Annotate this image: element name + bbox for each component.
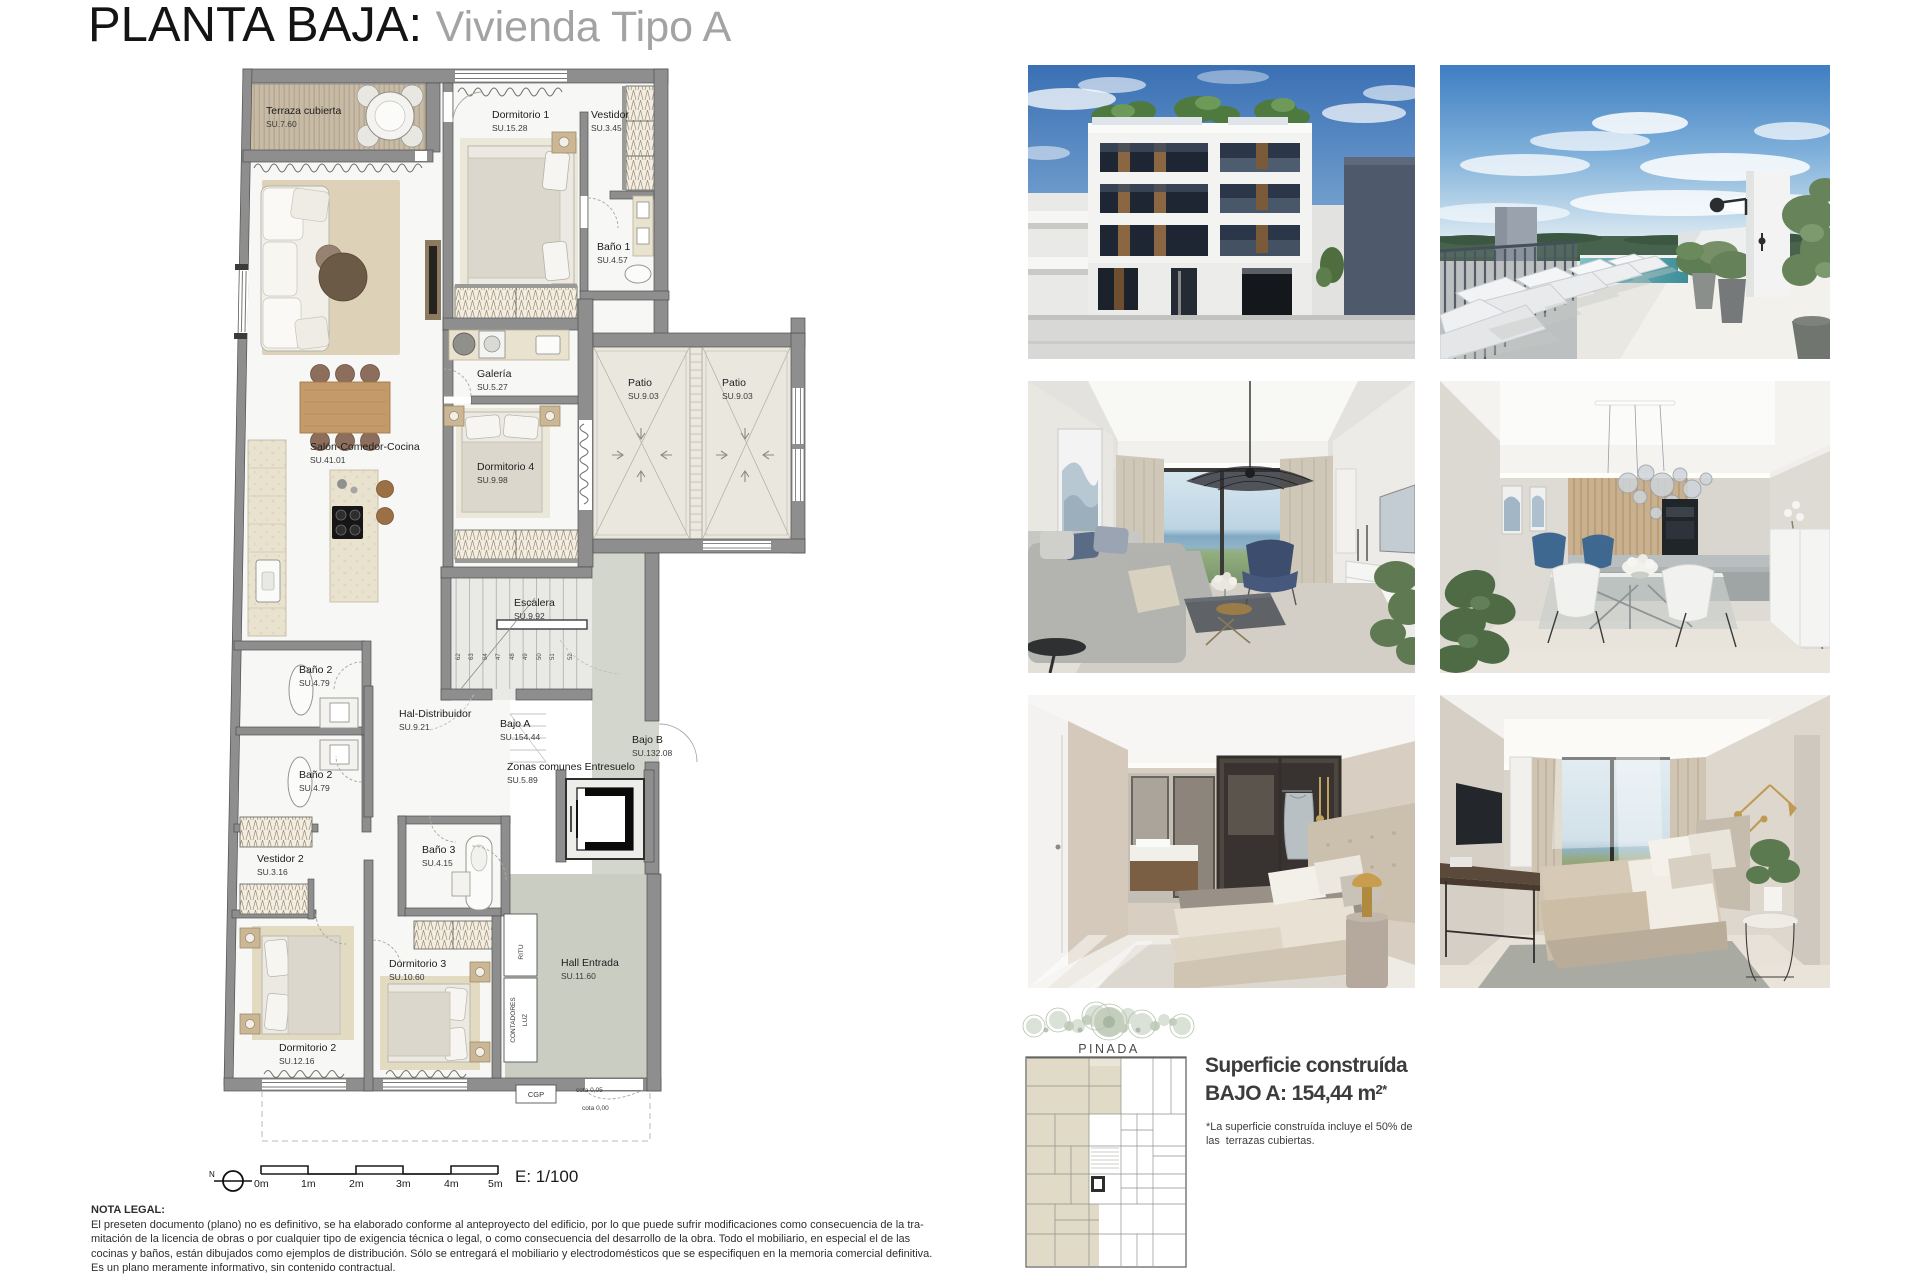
svg-text:CONTADORES: CONTADORES xyxy=(510,997,517,1043)
svg-text:Escalera: Escalera xyxy=(514,597,555,609)
svg-text:E: 1/100: E: 1/100 xyxy=(515,1167,578,1186)
svg-text:CGP: CGP xyxy=(528,1090,544,1099)
svg-text:SU.9.92: SU.9.92 xyxy=(514,611,545,621)
svg-text:SU.5.89: SU.5.89 xyxy=(507,775,538,785)
svg-text:Patio: Patio xyxy=(628,377,652,389)
svg-text:SU.3.45: SU.3.45 xyxy=(591,123,622,133)
svg-text:Dormitorio 3: Dormitorio 3 xyxy=(389,958,446,970)
svg-text:N: N xyxy=(209,1170,215,1179)
svg-text:cota 0,05: cota 0,05 xyxy=(576,1087,603,1094)
svg-text:Bajo A: Bajo A xyxy=(500,718,530,730)
svg-text:SU.41.01: SU.41.01 xyxy=(310,455,346,465)
svg-text:4m: 4m xyxy=(444,1178,459,1190)
svg-text:52: 52 xyxy=(568,653,574,660)
svg-text:SU.132.08: SU.132.08 xyxy=(632,748,672,758)
svg-text:SU.11.60: SU.11.60 xyxy=(561,971,596,981)
svg-text:cota 0,00: cota 0,00 xyxy=(582,1105,609,1112)
svg-text:Terraza cubierta: Terraza cubierta xyxy=(266,105,341,117)
svg-text:LUZ: LUZ xyxy=(522,1014,529,1026)
svg-text:Baño 2: Baño 2 xyxy=(299,664,332,676)
svg-text:SU.12.16: SU.12.16 xyxy=(279,1056,315,1066)
svg-text:Dormitorio 1: Dormitorio 1 xyxy=(492,109,549,121)
svg-text:Baño 1: Baño 1 xyxy=(597,241,630,253)
svg-text:3m: 3m xyxy=(396,1178,411,1190)
svg-text:5m: 5m xyxy=(488,1178,503,1190)
svg-text:47: 47 xyxy=(496,653,502,660)
svg-text:Salón-Comedor-Cocina: Salón-Comedor-Cocina xyxy=(310,441,420,453)
svg-text:SU.9.21: SU.9.21 xyxy=(399,722,430,732)
svg-text:SU.154.44: SU.154.44 xyxy=(500,732,540,742)
svg-text:63: 63 xyxy=(469,653,475,660)
svg-text:SU.9.03: SU.9.03 xyxy=(628,391,659,401)
svg-text:SU.4.79: SU.4.79 xyxy=(299,783,330,793)
svg-text:Bajo B: Bajo B xyxy=(632,734,663,746)
svg-text:Dormitorio 4: Dormitorio 4 xyxy=(477,461,534,473)
svg-text:51: 51 xyxy=(550,653,556,660)
svg-text:Galería: Galería xyxy=(477,368,512,380)
svg-text:SU.15.28: SU.15.28 xyxy=(492,123,528,133)
svg-text:SU.4.15: SU.4.15 xyxy=(422,858,453,868)
svg-text:Patio: Patio xyxy=(722,377,746,389)
svg-text:RITU: RITU xyxy=(518,944,525,959)
svg-text:Baño 3: Baño 3 xyxy=(422,844,455,856)
svg-text:48: 48 xyxy=(510,653,516,660)
svg-text:Hall Entrada: Hall Entrada xyxy=(561,957,619,969)
svg-text:SU.5.27: SU.5.27 xyxy=(477,382,508,392)
svg-text:64: 64 xyxy=(483,653,489,660)
svg-text:Dormitorio 2: Dormitorio 2 xyxy=(279,1042,336,1054)
svg-text:SU.7.60: SU.7.60 xyxy=(266,119,297,129)
svg-text:SU.9.03: SU.9.03 xyxy=(722,391,753,401)
svg-text:Vestidor: Vestidor xyxy=(591,109,629,121)
svg-text:50: 50 xyxy=(537,653,543,660)
svg-text:Baño 2: Baño 2 xyxy=(299,769,332,781)
svg-text:PINADA: PINADA xyxy=(1078,1042,1140,1056)
svg-text:49: 49 xyxy=(523,653,529,660)
svg-text:SU.9.98: SU.9.98 xyxy=(477,475,508,485)
svg-text:SU.3.16: SU.3.16 xyxy=(257,867,288,877)
svg-text:Vestidor 2: Vestidor 2 xyxy=(257,853,304,865)
svg-text:62: 62 xyxy=(456,653,462,660)
svg-text:Zonas comunes Entresuelo: Zonas comunes Entresuelo xyxy=(507,761,635,773)
svg-text:2m: 2m xyxy=(349,1178,364,1190)
svg-text:Hal-Distribuidor: Hal-Distribuidor xyxy=(399,708,472,720)
svg-text:0m: 0m xyxy=(254,1178,269,1190)
svg-text:1m: 1m xyxy=(301,1178,316,1190)
svg-text:SU.10.60: SU.10.60 xyxy=(389,972,425,982)
svg-text:SU.4.57: SU.4.57 xyxy=(597,255,628,265)
svg-text:SU.4.79: SU.4.79 xyxy=(299,678,330,688)
